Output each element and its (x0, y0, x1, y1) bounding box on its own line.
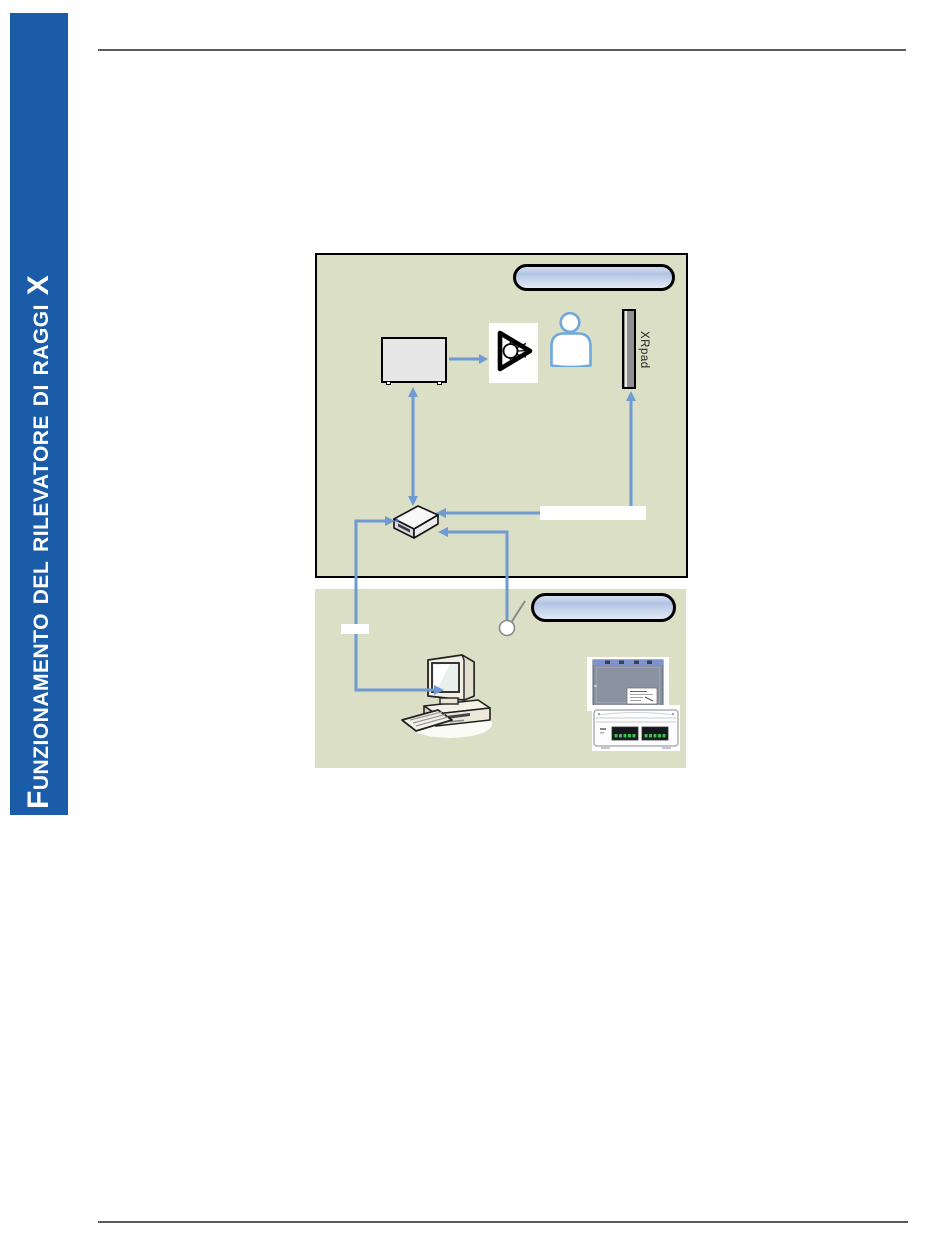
footer-rule (98, 1221, 908, 1223)
xray-room-banner (513, 264, 675, 291)
xrpad-label: XRpad (638, 331, 650, 369)
chapter-tab-label-wrap: Funzionamento del rilevatore di raggi X (10, 13, 68, 815)
chapter-tab: Funzionamento del rilevatore di raggi X (10, 13, 68, 815)
generator-foot-left (386, 381, 391, 385)
generator-foot-right (437, 381, 442, 385)
control-room-banner (531, 593, 676, 622)
battery-charger-icon (592, 705, 680, 751)
xray-room-box (315, 253, 688, 578)
header-rule (98, 49, 906, 51)
manual-page: Funzionamento del rilevatore di raggi X (0, 0, 950, 1260)
xrpad-detector (622, 309, 636, 389)
detector-panel-icon (587, 657, 669, 711)
xrpad-detector-edge (625, 311, 627, 387)
workstation-icon (398, 650, 494, 740)
chapter-title: Funzionamento del rilevatore di raggi X (22, 275, 56, 809)
network-switch-icon (389, 501, 443, 545)
patient-icon (549, 312, 593, 367)
generator-box (381, 337, 447, 383)
xray-tube-icon (489, 323, 538, 383)
